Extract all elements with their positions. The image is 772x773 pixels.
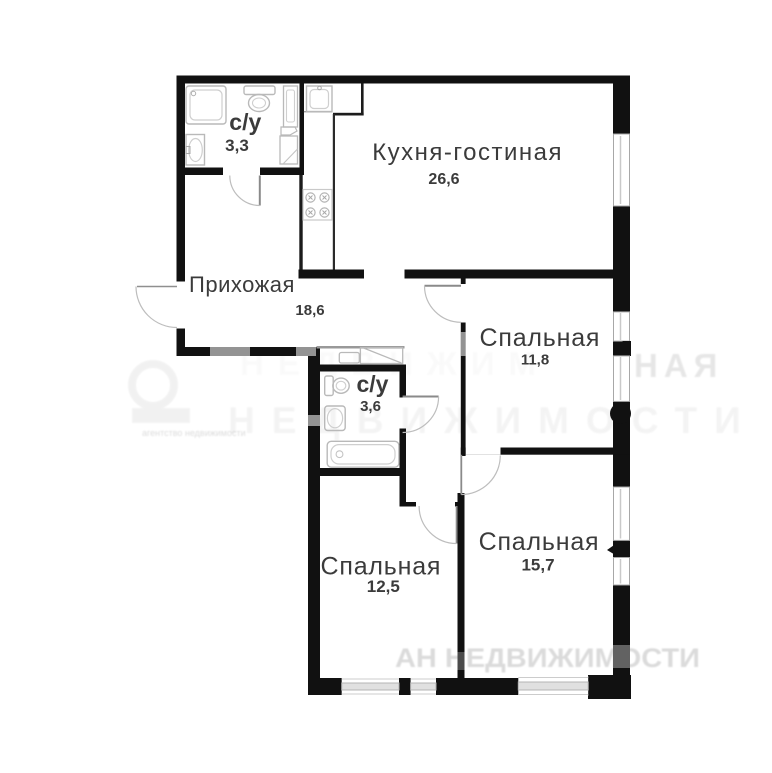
svg-text:15,7: 15,7 xyxy=(521,556,554,575)
svg-text:агентство недвижимости: агентство недвижимости xyxy=(142,428,246,438)
svg-text:АН НЕДВИЖИМОСТИ: АН НЕДВИЖИМОСТИ xyxy=(395,643,700,673)
svg-text:18,6: 18,6 xyxy=(295,302,324,319)
svg-text:Кухня-гостиная: Кухня-гостиная xyxy=(372,139,563,166)
svg-text:26,6: 26,6 xyxy=(428,171,459,188)
svg-text:3,6: 3,6 xyxy=(360,398,381,415)
svg-text:Спальная: Спальная xyxy=(479,528,600,556)
svg-text:НЕДВИЖИМОСТИ: НЕДВИЖИМОСТИ xyxy=(228,400,758,441)
svg-text:12,5: 12,5 xyxy=(367,577,400,596)
svg-text:Прихожая: Прихожая xyxy=(189,272,295,297)
svg-text:с/у: с/у xyxy=(229,109,261,135)
svg-text:НАЯ: НАЯ xyxy=(634,347,723,384)
svg-text:11,8: 11,8 xyxy=(521,352,549,369)
svg-text:3,3: 3,3 xyxy=(225,136,249,155)
svg-text:с/у: с/у xyxy=(357,371,389,397)
svg-text:Спальная: Спальная xyxy=(480,324,601,352)
